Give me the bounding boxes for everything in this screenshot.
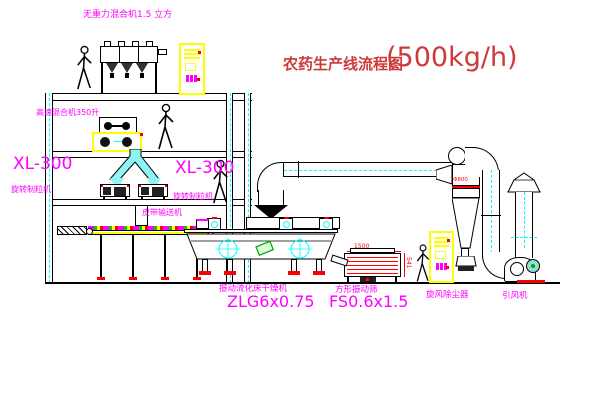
mixer-inlet-port <box>132 41 139 47</box>
control-cabinet-top <box>179 43 205 95</box>
mixer-valve <box>140 73 144 78</box>
duct-vertical-feed <box>258 190 284 206</box>
duct-down <box>482 170 500 258</box>
conveyor-leg <box>164 235 166 279</box>
conveyor-foot <box>161 277 169 280</box>
dryer-body <box>183 233 339 261</box>
cyclone-cylinder <box>452 188 480 198</box>
sieve-leg <box>395 277 397 282</box>
stack-tube <box>515 192 533 248</box>
granulator-right-name: 旋转制粒机 <box>173 193 213 201</box>
conveyor-leg <box>132 235 134 279</box>
person-figure <box>74 44 95 92</box>
sieve-motor <box>360 277 376 282</box>
speed-mixer-label: 高速混合机350升 <box>36 109 99 117</box>
cyclone-base <box>458 266 474 271</box>
conveyor-foot <box>97 277 105 280</box>
duct-horizontal <box>283 162 453 177</box>
dryer-feed-box <box>196 219 209 229</box>
granulator-leg <box>163 197 165 200</box>
conveyor-foot <box>129 277 137 280</box>
conveyor-roller <box>86 228 93 235</box>
mixer-inlet-port <box>118 41 125 47</box>
page-title: 农药生产线流程图 <box>283 53 403 74</box>
duct-elbow-left <box>257 162 285 192</box>
duct-reducer <box>436 165 453 185</box>
fan-motor <box>526 259 540 273</box>
mixer-valve <box>110 73 114 78</box>
granulator-left-model: XL-300 <box>13 156 72 173</box>
granulator-left-name: 旋转制粒机 <box>11 186 51 194</box>
belt-conveyor-label: 皮带输送机 <box>142 209 182 217</box>
control-cabinet-bottom <box>429 231 454 283</box>
title-capacity: (500kg/h) <box>386 42 518 73</box>
speed-mixer-mech <box>99 117 137 133</box>
mixer-leg <box>155 63 157 93</box>
mixer-discharge-funnel <box>136 63 148 73</box>
mixer-discharge-funnel <box>121 63 133 73</box>
mixer-leg <box>101 63 103 93</box>
floor-slab-top <box>45 93 252 101</box>
sieve-dim-height: 541 <box>405 257 411 268</box>
granulator-right-body <box>138 184 168 197</box>
dryer-foot <box>313 271 325 275</box>
cyclone-dim-note: Φ800 <box>453 178 468 184</box>
conveyor-foot <box>193 277 201 280</box>
cyclone-outlet-circle <box>448 147 466 165</box>
y-chute <box>102 149 166 183</box>
sieve-body <box>344 253 401 277</box>
drawing-canvas: 农药生产线流程图 (500kg/h) 无重力混合机1.5 立方 <box>0 0 600 403</box>
fan-label: 引风机 <box>502 292 528 301</box>
conveyor-leg <box>100 235 102 279</box>
sieve-model-label: FS0.6x1.5 <box>329 294 408 310</box>
granulator-leg <box>125 197 127 200</box>
granulator-left-body <box>100 184 130 197</box>
granulator-leg <box>103 197 105 200</box>
dryer-foot <box>224 271 236 275</box>
mixer-valve <box>125 73 129 78</box>
dryer-model-label: ZLG6x0.75 <box>227 294 315 310</box>
hatched-pad <box>57 226 87 235</box>
mixer-inlet-port <box>146 41 153 47</box>
mixer-discharge-funnel <box>106 63 118 73</box>
granulator-leg <box>141 197 143 200</box>
stack-tick <box>511 237 537 238</box>
granulator-right-model: XL-300 <box>175 160 234 177</box>
gravity-mixer-body <box>100 46 158 63</box>
ground-line <box>45 282 560 284</box>
person-figure <box>155 102 177 152</box>
sieve-leg <box>347 277 349 282</box>
dryer-foot <box>199 271 211 275</box>
gravity-mixer-label: 无重力混合机1.5 立方 <box>83 11 172 20</box>
fan-base <box>517 280 545 283</box>
cyclone-cone <box>452 198 480 250</box>
mixer-side-pipe <box>158 49 167 55</box>
stack-cap <box>506 172 542 193</box>
red-indicator <box>140 133 143 136</box>
dryer-foot <box>288 271 300 275</box>
mixer-inlet-port <box>104 41 111 47</box>
cyclone-label: 旋风除尘器 <box>426 291 469 300</box>
